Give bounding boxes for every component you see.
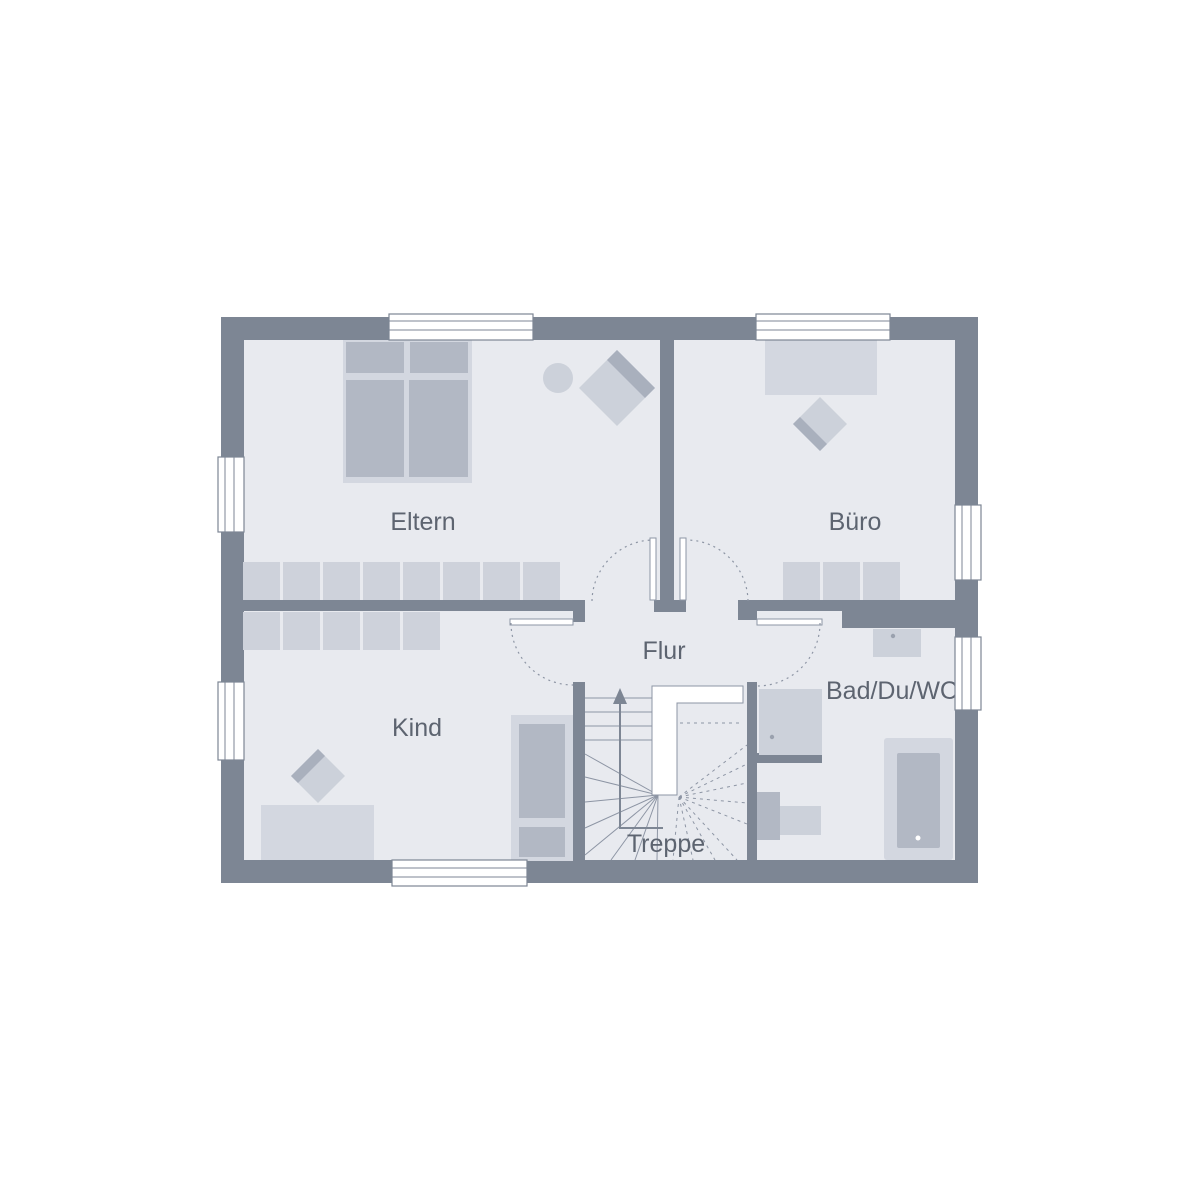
room-label-flur: Flur — [642, 637, 685, 665]
wall-center-foot — [654, 600, 686, 612]
wardrobe-cell — [363, 562, 400, 600]
wall-middle-right — [738, 600, 955, 611]
wardrobe-cell — [483, 562, 520, 600]
washbasin — [873, 629, 921, 657]
room-label-eltern: Eltern — [390, 508, 455, 536]
hallway: Flur — [642, 637, 685, 665]
wc-bowl — [780, 806, 821, 835]
wardrobe-cell — [403, 562, 440, 600]
door-leaf — [650, 538, 656, 600]
bed-pillow — [410, 342, 468, 373]
room-label-kind: Kind — [392, 714, 442, 742]
bed-pillow — [519, 827, 565, 857]
wall-middle-left — [244, 600, 573, 611]
window-bad-right — [955, 637, 981, 710]
desk — [261, 805, 374, 860]
window-kind-bottom — [392, 860, 527, 886]
wardrobe-cell — [243, 562, 280, 600]
window-kind-left — [218, 682, 244, 760]
door-leaf — [510, 619, 573, 625]
cabinet-buero — [783, 562, 900, 600]
wall-stair-left — [573, 682, 585, 860]
door-leaf — [680, 538, 686, 600]
window-eltern-top — [389, 314, 533, 340]
wardrobe-cell — [443, 562, 480, 600]
wardrobe-cell — [403, 612, 440, 650]
bathtub-basin — [897, 753, 940, 848]
wall-stair-right — [747, 682, 757, 860]
bed-mattress — [346, 380, 404, 477]
wardrobe-cell — [323, 612, 360, 650]
room-label-bad: Bad/Du/WC — [826, 677, 958, 705]
wardrobe-cell — [283, 612, 320, 650]
wardrobe-cell — [823, 562, 860, 600]
shower-drain — [770, 735, 774, 739]
bed-mattress — [409, 380, 468, 477]
wall-stub-kind-door — [573, 600, 585, 622]
floor-plan: Eltern Büro Kind — [221, 317, 978, 883]
wardrobe-cell — [363, 612, 400, 650]
room-label-treppe: Treppe — [627, 830, 705, 858]
wall-stub-bad-door — [738, 600, 757, 620]
floor-plan-page: Eltern Büro Kind — [0, 0, 1200, 1200]
wardrobe-cell — [323, 562, 360, 600]
bed-mattress — [519, 724, 565, 818]
wc-cistern — [757, 792, 780, 840]
wall-installation — [842, 611, 955, 628]
bathtub-drain — [916, 836, 921, 841]
washbasin-tap — [891, 634, 895, 638]
wardrobe-cell — [243, 612, 280, 650]
wardrobe-cell — [283, 562, 320, 600]
window-eltern-left — [218, 457, 244, 532]
shower — [759, 689, 822, 755]
desk — [765, 340, 877, 395]
plant-icon — [543, 363, 573, 393]
wardrobe-cell — [783, 562, 820, 600]
room-label-buero: Büro — [829, 508, 882, 536]
wardrobe-cell — [523, 562, 560, 600]
door-leaf — [757, 619, 822, 625]
window-buero-right — [955, 505, 981, 580]
wall-eltern-buero — [660, 340, 674, 600]
window-buero-top — [756, 314, 890, 340]
wardrobe-kind — [243, 612, 440, 650]
bed-pillow — [346, 342, 404, 373]
wardrobe-cell — [863, 562, 900, 600]
